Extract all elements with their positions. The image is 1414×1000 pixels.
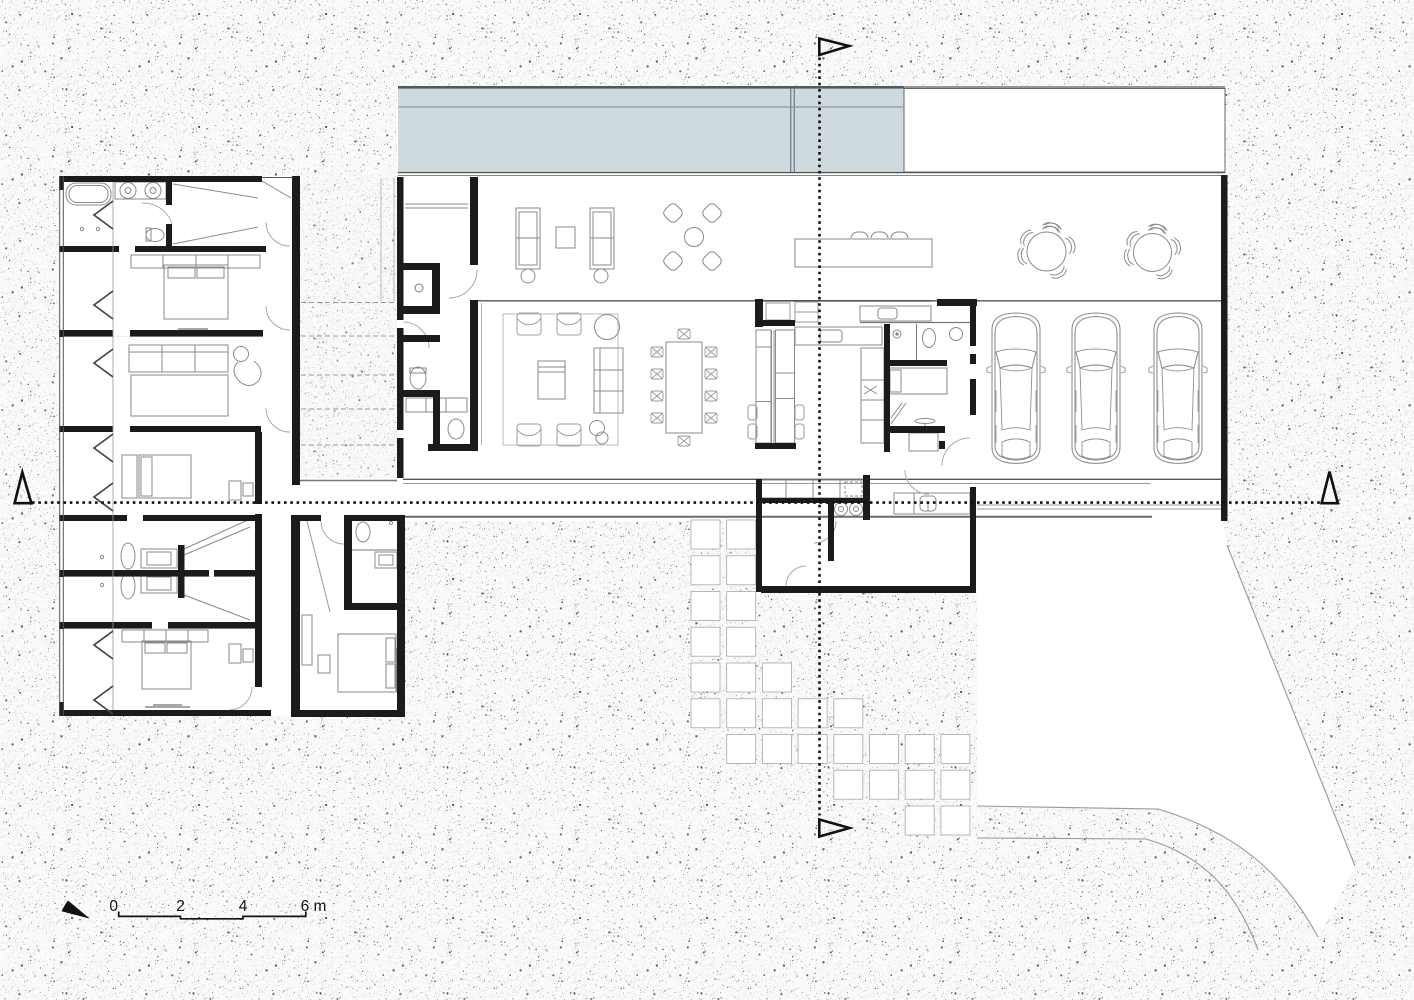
- svg-text:0: 0: [109, 898, 118, 915]
- svg-text:6 m: 6 m: [301, 898, 327, 915]
- svg-text:4: 4: [239, 898, 248, 915]
- svg-text:2: 2: [176, 898, 185, 915]
